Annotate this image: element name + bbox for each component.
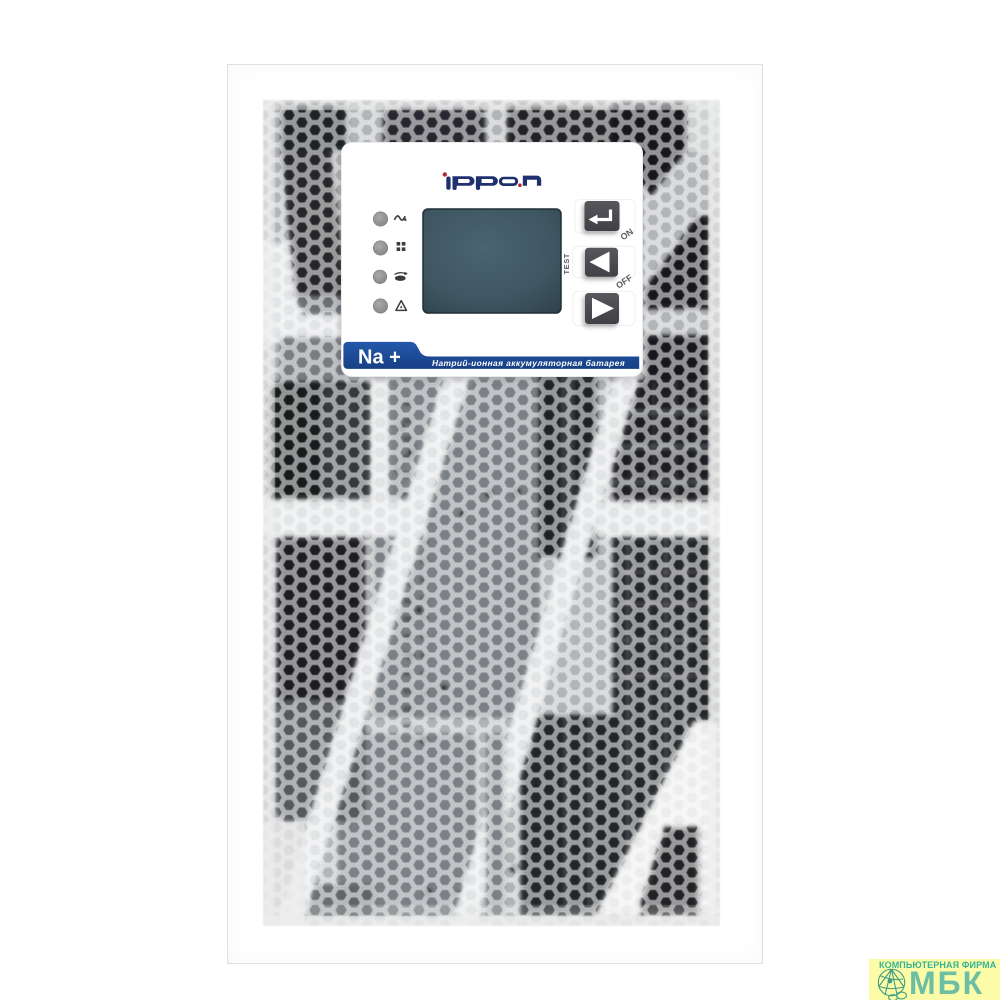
svg-text:Na +: Na +: [358, 347, 401, 369]
svg-text:TEST: TEST: [562, 253, 571, 274]
svg-text:ON: ON: [619, 226, 636, 242]
svg-text:Натрий-ионная аккумуляторная б: Натрий-ионная аккумуляторная батарея: [432, 358, 625, 368]
